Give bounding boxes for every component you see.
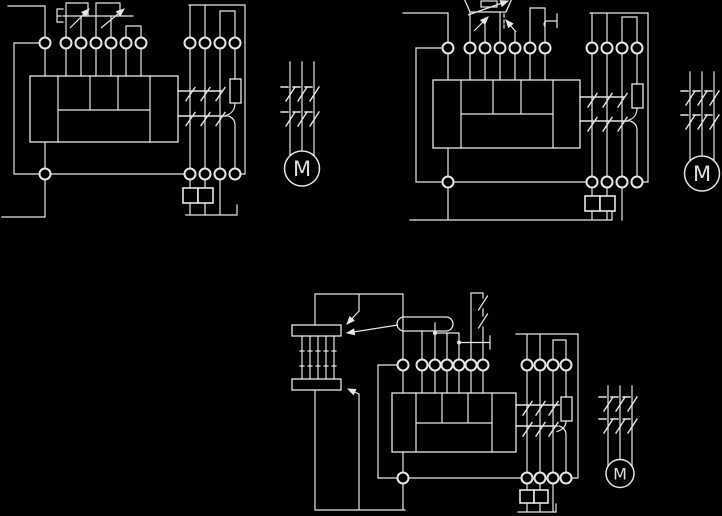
- motor-label: M: [613, 465, 627, 484]
- junction-dot: [433, 331, 437, 335]
- schematic-canvas: M: [0, 0, 722, 516]
- background: [0, 0, 722, 516]
- motor-label: M: [293, 157, 311, 181]
- motor-label: M: [693, 162, 711, 186]
- fuse-blocks: [585, 196, 615, 211]
- fuse-blocks: [183, 188, 213, 203]
- junction-dot: [457, 341, 461, 345]
- fuse-blocks: [520, 490, 548, 503]
- schematic-page: M: [0, 0, 722, 516]
